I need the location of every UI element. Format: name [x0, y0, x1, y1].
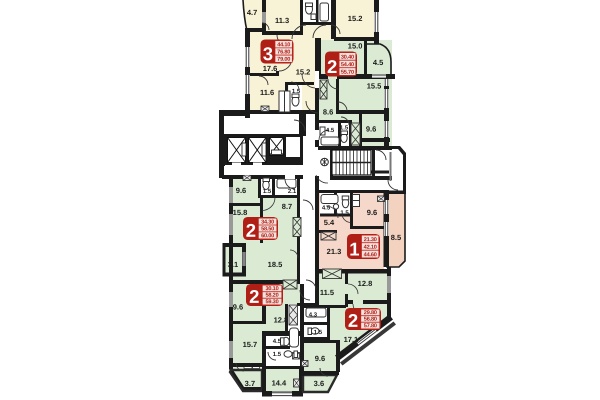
svg-text:15.7: 15.7 [243, 340, 258, 349]
svg-text:2: 2 [249, 286, 259, 307]
svg-text:30.10: 30.10 [266, 286, 279, 292]
svg-text:17.1: 17.1 [344, 335, 359, 344]
svg-text:21.30: 21.30 [364, 237, 377, 243]
svg-text:15.5: 15.5 [367, 82, 382, 91]
svg-text:34.30: 34.30 [261, 219, 274, 225]
svg-text:76.80: 76.80 [277, 50, 290, 56]
svg-text:11.6: 11.6 [260, 88, 274, 97]
svg-text:4.7: 4.7 [247, 8, 257, 17]
svg-text:4.3: 4.3 [309, 312, 318, 319]
svg-text:14.4: 14.4 [272, 378, 287, 387]
svg-text:17.6: 17.6 [263, 64, 278, 73]
svg-text:9.6: 9.6 [367, 208, 377, 217]
svg-text:15.0: 15.0 [348, 42, 363, 51]
svg-text:3.7: 3.7 [245, 379, 255, 388]
svg-text:1.5: 1.5 [263, 188, 272, 195]
svg-text:9.6: 9.6 [233, 302, 243, 311]
svg-text:21.3: 21.3 [327, 247, 342, 256]
svg-text:9.6: 9.6 [236, 186, 246, 195]
svg-text:79.00: 79.00 [277, 57, 290, 63]
svg-text:8.6: 8.6 [323, 108, 333, 117]
svg-text:44.60: 44.60 [364, 252, 377, 258]
svg-text:1.5: 1.5 [273, 351, 282, 358]
svg-text:3.1: 3.1 [228, 260, 238, 269]
svg-text:2: 2 [327, 56, 337, 77]
svg-text:54.40: 54.40 [341, 62, 354, 68]
svg-text:12.8: 12.8 [358, 279, 373, 288]
svg-text:57.80: 57.80 [364, 323, 377, 329]
svg-text:11.3: 11.3 [275, 16, 289, 25]
svg-text:8.7: 8.7 [282, 202, 292, 211]
svg-text:2.1: 2.1 [288, 188, 297, 195]
svg-text:3: 3 [263, 43, 273, 64]
svg-text:15.8: 15.8 [233, 208, 248, 217]
svg-text:58.20: 58.20 [265, 293, 278, 299]
svg-text:42.10: 42.10 [364, 245, 377, 251]
svg-text:9.6: 9.6 [315, 354, 325, 363]
svg-text:2: 2 [348, 310, 358, 331]
svg-text:60.00: 60.00 [261, 233, 274, 239]
svg-text:58.50: 58.50 [261, 226, 274, 232]
svg-text:11.5: 11.5 [320, 288, 334, 297]
svg-text:3.6: 3.6 [314, 379, 324, 388]
svg-text:30.40: 30.40 [341, 55, 354, 61]
svg-text:18.5: 18.5 [268, 260, 283, 269]
svg-text:8.5: 8.5 [391, 233, 401, 242]
svg-text:1.5: 1.5 [340, 125, 349, 132]
svg-text:2: 2 [246, 220, 256, 241]
svg-text:59.30: 59.30 [265, 299, 278, 305]
svg-text:44.10: 44.10 [277, 42, 290, 48]
svg-text:4.5: 4.5 [273, 338, 282, 345]
svg-text:9.6: 9.6 [366, 125, 376, 134]
svg-text:1.5: 1.5 [340, 210, 349, 217]
svg-text:29.80: 29.80 [364, 310, 377, 316]
svg-text:1.5: 1.5 [292, 88, 301, 95]
svg-text:12.8: 12.8 [274, 315, 289, 324]
svg-text:56.80: 56.80 [364, 317, 377, 323]
svg-text:4.5: 4.5 [322, 205, 331, 212]
svg-text:4.5: 4.5 [326, 127, 335, 134]
svg-text:55.70: 55.70 [341, 70, 354, 76]
svg-text:4.5: 4.5 [373, 58, 383, 67]
svg-text:15.2: 15.2 [296, 67, 311, 76]
svg-text:5.4: 5.4 [324, 218, 335, 227]
svg-text:15.2: 15.2 [348, 14, 363, 23]
svg-text:1.5: 1.5 [314, 329, 323, 336]
svg-text:1: 1 [349, 238, 359, 259]
